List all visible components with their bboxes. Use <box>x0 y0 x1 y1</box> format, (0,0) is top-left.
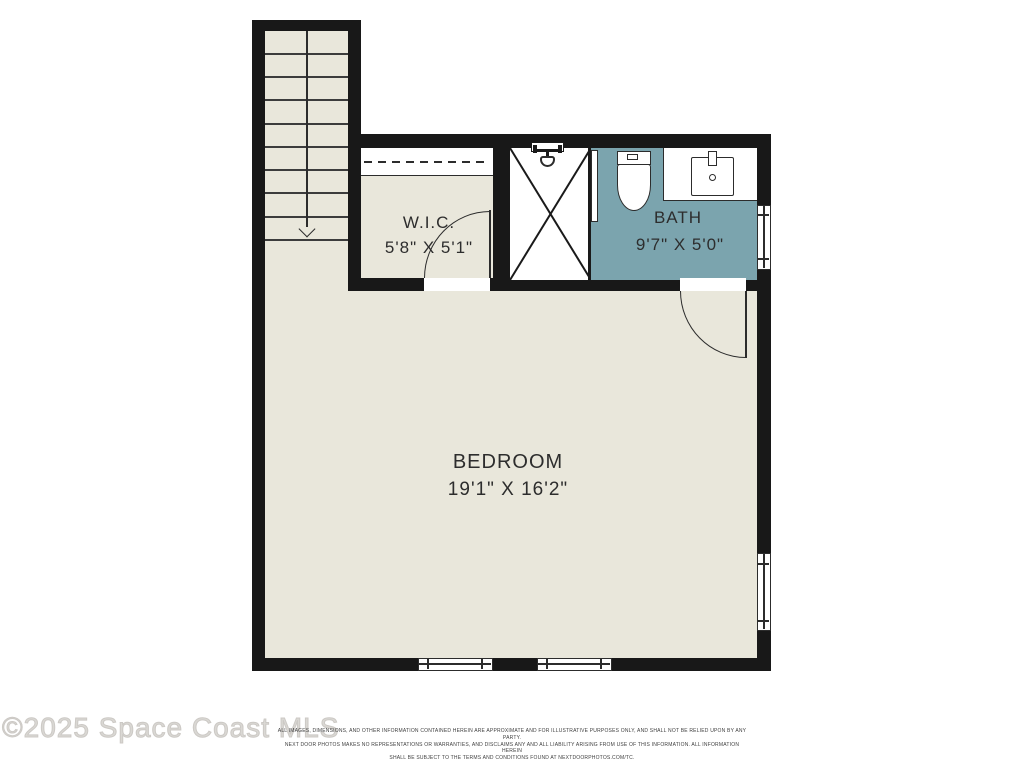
bath-dimensions: 9'7" X 5'0" <box>636 235 724 255</box>
wall-stair-right <box>348 20 361 291</box>
window-cap <box>481 659 483 669</box>
window-cap <box>758 258 769 260</box>
window-cap <box>427 659 429 669</box>
bedroom-dimensions: 19'1" X 16'2" <box>448 479 568 501</box>
wall-left <box>252 20 265 671</box>
toilet-flush-button <box>627 154 638 160</box>
sink-drain <box>709 174 716 181</box>
window-cap <box>546 659 548 669</box>
window-cap <box>758 563 769 565</box>
disclaimer-line: ALL IMAGES, DIMENSIONS, AND OTHER INFORM… <box>277 728 747 742</box>
disclaimer-line: NEXT DOOR PHOTOS MAKES NO REPRESENTATION… <box>277 742 747 756</box>
stair-tread <box>265 239 348 241</box>
wic-door-opening <box>424 278 490 291</box>
window-pane-line <box>763 554 765 629</box>
wic-label: W.I.C. <box>403 213 455 233</box>
disclaimer: ALL IMAGES, DIMENSIONS, AND OTHER INFORM… <box>277 728 747 762</box>
stair-direction-line <box>306 31 308 227</box>
bedroom-right-window <box>757 553 771 631</box>
bath-door-opening <box>680 278 746 291</box>
shower-valve-end <box>558 145 562 153</box>
window-cap <box>600 659 602 669</box>
disclaimer-line: SHALL BE SUBJECT TO THE TERMS AND CONDIT… <box>277 755 747 762</box>
floorplan-canvas: W.I.C. 5'8" X 5'1" BATH 9'7" X 5'0" BEDR… <box>0 0 1024 768</box>
bath-window <box>757 205 771 270</box>
bath-label: BATH <box>654 208 702 228</box>
shower-x-lines <box>510 148 591 280</box>
room-bedroom <box>265 291 757 658</box>
window-cap <box>758 620 769 622</box>
window-cap <box>758 214 769 216</box>
sink-faucet <box>708 151 717 166</box>
wic-door-leaf <box>489 210 491 278</box>
bedroom-bottom-window-left <box>418 658 493 671</box>
wall-wic-shower-divider <box>493 134 510 291</box>
wall-bottom <box>252 658 771 671</box>
bedroom-label: BEDROOM <box>453 451 563 474</box>
wic-dimensions: 5'8" X 5'1" <box>385 238 473 258</box>
shower-glass-panel <box>591 150 598 222</box>
wall-stair-top <box>252 20 361 31</box>
bedroom-bottom-window-right <box>537 658 612 671</box>
shower-valve-end <box>533 145 537 153</box>
bath-door-leaf <box>745 291 747 358</box>
closet-rod-dashed-line <box>364 161 490 163</box>
shower <box>510 148 591 280</box>
